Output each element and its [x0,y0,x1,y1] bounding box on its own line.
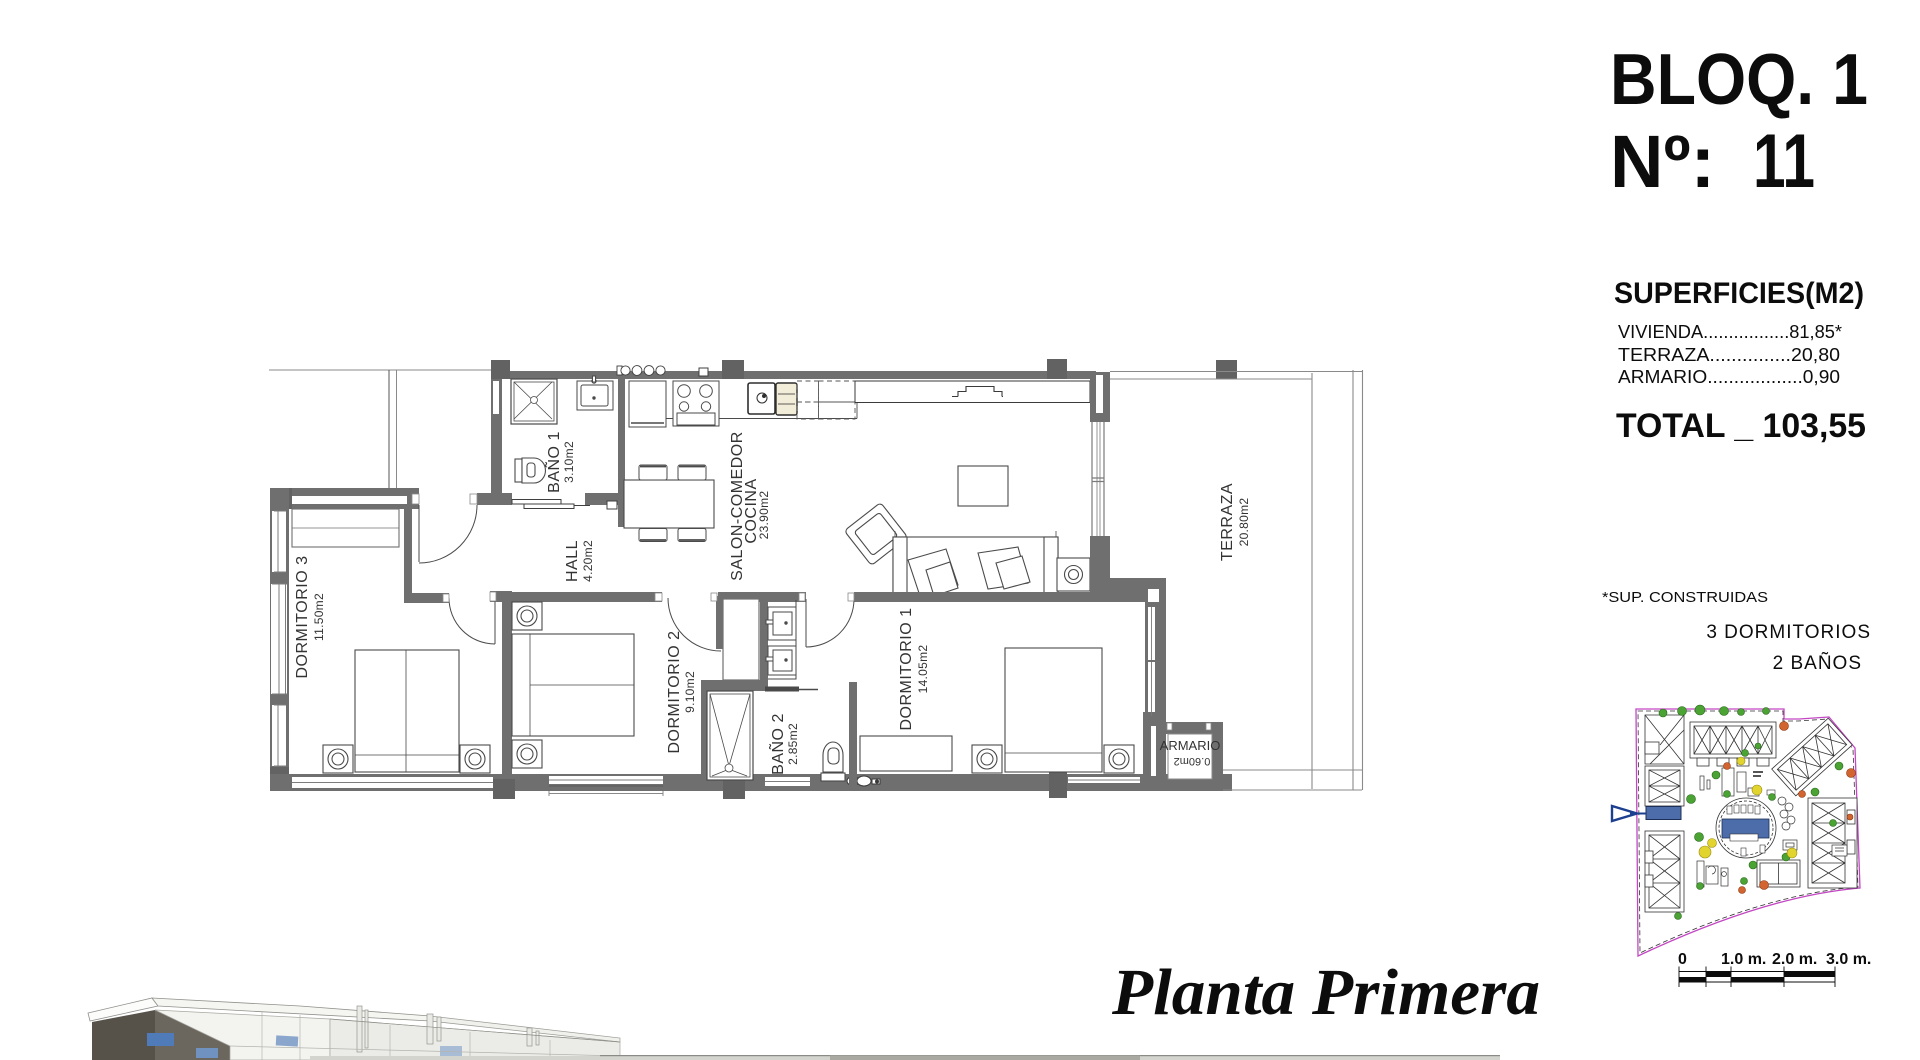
svg-text:0.60m2: 0.60m2 [1174,755,1211,767]
svg-text:2 BAÑOS: 2 BAÑOS [1773,652,1862,674]
svg-text:BAÑO 1: BAÑO 1 [543,431,563,493]
svg-text:BAÑO 2: BAÑO 2 [767,713,787,775]
svg-text:ARMARIO: ARMARIO [1160,738,1221,753]
svg-text:VIVIENDA.................81,85: VIVIENDA.................81,85* [1618,322,1842,342]
svg-text:DORMITORIO 2: DORMITORIO 2 [666,630,683,753]
svg-text:TERRAZA: TERRAZA [1219,483,1236,561]
svg-text:*SUP. CONSTRUIDAS: *SUP. CONSTRUIDAS [1602,589,1768,606]
svg-text:20.80m2: 20.80m2 [1237,498,1251,547]
svg-text:Nº:: Nº: [1610,120,1715,203]
svg-text:3.10m2: 3.10m2 [562,441,576,483]
svg-text:Planta Primera: Planta Primera [1111,956,1540,1029]
svg-text:1.0 m.: 1.0 m. [1721,951,1766,968]
svg-text:11: 11 [1753,119,1815,204]
svg-text:11.50m2: 11.50m2 [312,593,326,641]
svg-text:14.05m2: 14.05m2 [916,645,930,694]
svg-text:3 DORMITORIOS: 3 DORMITORIOS [1706,622,1871,643]
svg-text:4.20m2: 4.20m2 [581,540,595,582]
svg-text:2.0 m.: 2.0 m. [1772,951,1817,968]
svg-text:3.0 m.: 3.0 m. [1826,951,1871,968]
svg-text:9.10m2: 9.10m2 [683,671,697,713]
svg-text:ARMARIO..................0,90: ARMARIO..................0,90 [1618,367,1840,387]
svg-text:HALL: HALL [564,540,581,582]
svg-text:BLOQ. 1: BLOQ. 1 [1610,40,1868,120]
svg-text:2.85m2: 2.85m2 [786,723,800,765]
svg-text:TOTAL _ 103,55: TOTAL _ 103,55 [1616,407,1866,445]
svg-text:TERRAZA...............20,80: TERRAZA...............20,80 [1618,345,1840,365]
svg-text:DORMITORIO 3: DORMITORIO 3 [294,555,311,678]
svg-text:0: 0 [1678,951,1687,968]
svg-text:DORMITORIO 1: DORMITORIO 1 [898,607,915,730]
svg-text:SUPERFICIES(M2): SUPERFICIES(M2) [1614,277,1864,310]
svg-text:23.90m2: 23.90m2 [757,491,771,540]
